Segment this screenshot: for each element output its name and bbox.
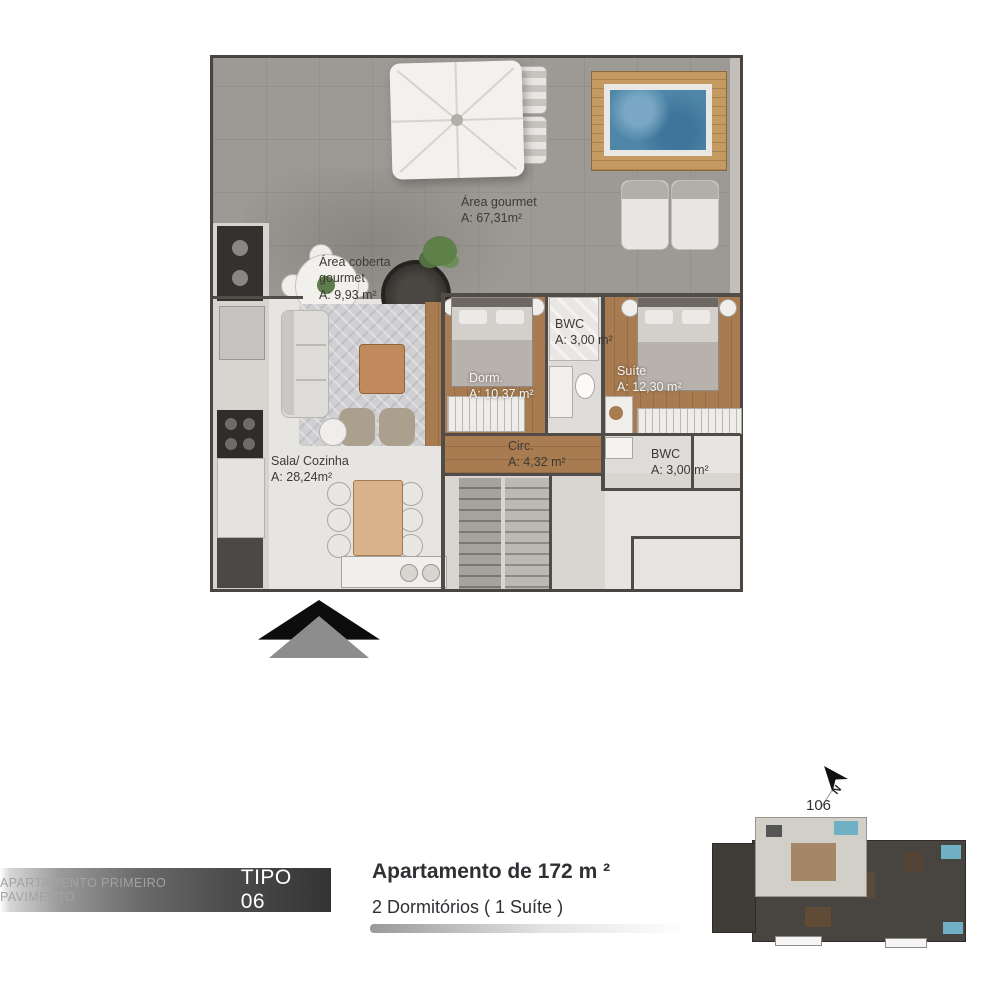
suite-wardrobe — [637, 408, 742, 434]
sun-lounger — [621, 180, 669, 250]
room-area: A: 12,30 m² — [617, 379, 682, 395]
room-area: A: 3,00 m² — [651, 462, 709, 478]
footer-bar-type: TIPO 06 — [241, 866, 317, 914]
sink-bowl — [400, 564, 418, 582]
room-name: Área gourmet — [461, 194, 537, 210]
footer-bar-subtitle: APARTAMENTO PRIMEIRO PAVIMENTO — [0, 876, 229, 904]
sofa-seam — [296, 379, 326, 381]
dining-chair — [327, 534, 351, 558]
minimap-balcony — [775, 936, 822, 946]
towel — [622, 181, 668, 199]
hot-tub-water — [610, 90, 706, 150]
room-name: Circ. — [508, 438, 566, 454]
burner — [243, 418, 255, 430]
tv-wood-panel — [425, 302, 441, 446]
footer-divider — [370, 924, 688, 933]
room-area: A: 3,00 m² — [555, 332, 613, 348]
staircase-flight — [459, 478, 501, 589]
wall — [441, 433, 740, 436]
room-name: Dorm. — [469, 370, 534, 386]
refrigerator — [219, 306, 265, 360]
burner — [243, 438, 255, 450]
grill-station — [217, 226, 263, 301]
bwc1-vanity — [549, 366, 573, 418]
wall — [631, 536, 740, 539]
room-area: A: 28,24m² — [271, 469, 349, 485]
bwc2-sink — [605, 437, 633, 459]
wall — [213, 296, 303, 299]
label-suite: Suíte A: 12,30 m² — [617, 363, 682, 396]
umbrella — [390, 60, 525, 179]
wall — [441, 293, 740, 297]
sun-lounger — [671, 180, 719, 250]
plant — [423, 236, 457, 266]
pillow — [682, 310, 710, 324]
minimap-pool — [943, 922, 963, 934]
room-name: Sala/ Cozinha — [271, 453, 349, 469]
kitchen-sink-counter — [217, 458, 265, 538]
label-dorm: Dorm. A: 10,37 m² — [469, 370, 534, 403]
deck-right-wall — [730, 58, 740, 299]
room-area: A: 9,93 m² — [319, 287, 399, 303]
stool — [609, 406, 623, 420]
minimap-north-label: N — [830, 783, 844, 797]
wall — [545, 293, 548, 435]
minimap-unit-furniture — [766, 825, 782, 837]
wall — [441, 293, 445, 589]
wall — [601, 488, 740, 491]
burner — [225, 438, 237, 450]
label-area-gourmet: Área gourmet A: 67,31m² — [461, 194, 537, 227]
dining-table — [353, 480, 403, 556]
dining-chair — [327, 508, 351, 532]
sofa — [281, 310, 329, 418]
room-name: Área coberta gourmet — [319, 254, 399, 287]
headboard — [638, 298, 718, 307]
label-area-coberta: Área coberta gourmet A: 9,93 m² — [319, 254, 399, 303]
wall — [549, 473, 552, 589]
side-table — [319, 418, 347, 446]
towel — [672, 181, 718, 199]
apartment-size-text: Apartamento de 172 m ² — [372, 860, 610, 884]
grill-burner — [232, 240, 248, 256]
grill-burner — [232, 270, 248, 286]
staircase-flight — [505, 478, 549, 589]
sink-bowl — [422, 564, 440, 582]
floor-plan: Área gourmet A: 67,31m² Área coberta gou… — [210, 55, 743, 592]
sofa-back — [282, 311, 294, 415]
building-minimap — [705, 812, 995, 947]
label-bwc1: BWC A: 3,00 m² — [555, 316, 613, 349]
room-name: BWC — [651, 446, 709, 462]
minimap-unit-hot-tub — [834, 821, 858, 835]
apartment-rooms-text: 2 Dormitórios ( 1 Suíte ) — [372, 897, 563, 918]
room-area: A: 10,37 m² — [469, 386, 534, 402]
hot-tub — [591, 71, 727, 171]
sofa-seam — [296, 344, 326, 346]
minimap-pool — [941, 845, 961, 859]
room-name: Suíte — [617, 363, 682, 379]
back-room-floor — [605, 491, 740, 589]
pillow — [645, 310, 673, 324]
minimap-building-left-wing — [712, 843, 756, 933]
label-bwc2: BWC A: 3,00 m² — [651, 446, 709, 479]
minimap-balcony — [885, 938, 927, 948]
label-circ: Circ. A: 4,32 m² — [508, 438, 566, 471]
page: Área gourmet A: 67,31m² Área coberta gou… — [0, 0, 1000, 1000]
room-name: BWC — [555, 316, 613, 332]
headboard — [452, 298, 532, 307]
pillow — [459, 310, 487, 324]
coffee-table — [359, 344, 405, 394]
nightstand — [719, 299, 737, 317]
tv-panel-wood — [425, 302, 441, 446]
minimap-unit-wood-floor — [791, 843, 836, 881]
pouf — [379, 408, 415, 446]
pillow — [496, 310, 524, 324]
footer-title-bar: APARTAMENTO PRIMEIRO PAVIMENTO TIPO 06 — [0, 868, 331, 912]
room-area: A: 67,31m² — [461, 210, 537, 226]
label-sala: Sala/ Cozinha A: 28,24m² — [271, 453, 349, 486]
wall — [441, 473, 603, 476]
room-area: A: 4,32 m² — [508, 454, 566, 470]
wall — [631, 536, 634, 589]
minimap-wood-patch — [905, 852, 923, 872]
toilet — [575, 373, 595, 399]
minimap-highlighted-unit — [755, 817, 867, 897]
island-counter — [341, 556, 447, 588]
kitchen-cabinet — [217, 538, 263, 588]
dining-chair — [327, 482, 351, 506]
minimap-wood-patch — [805, 907, 831, 927]
burner — [225, 418, 237, 430]
minimap-unit-label: 106 — [806, 797, 831, 814]
cooktop — [217, 410, 263, 458]
